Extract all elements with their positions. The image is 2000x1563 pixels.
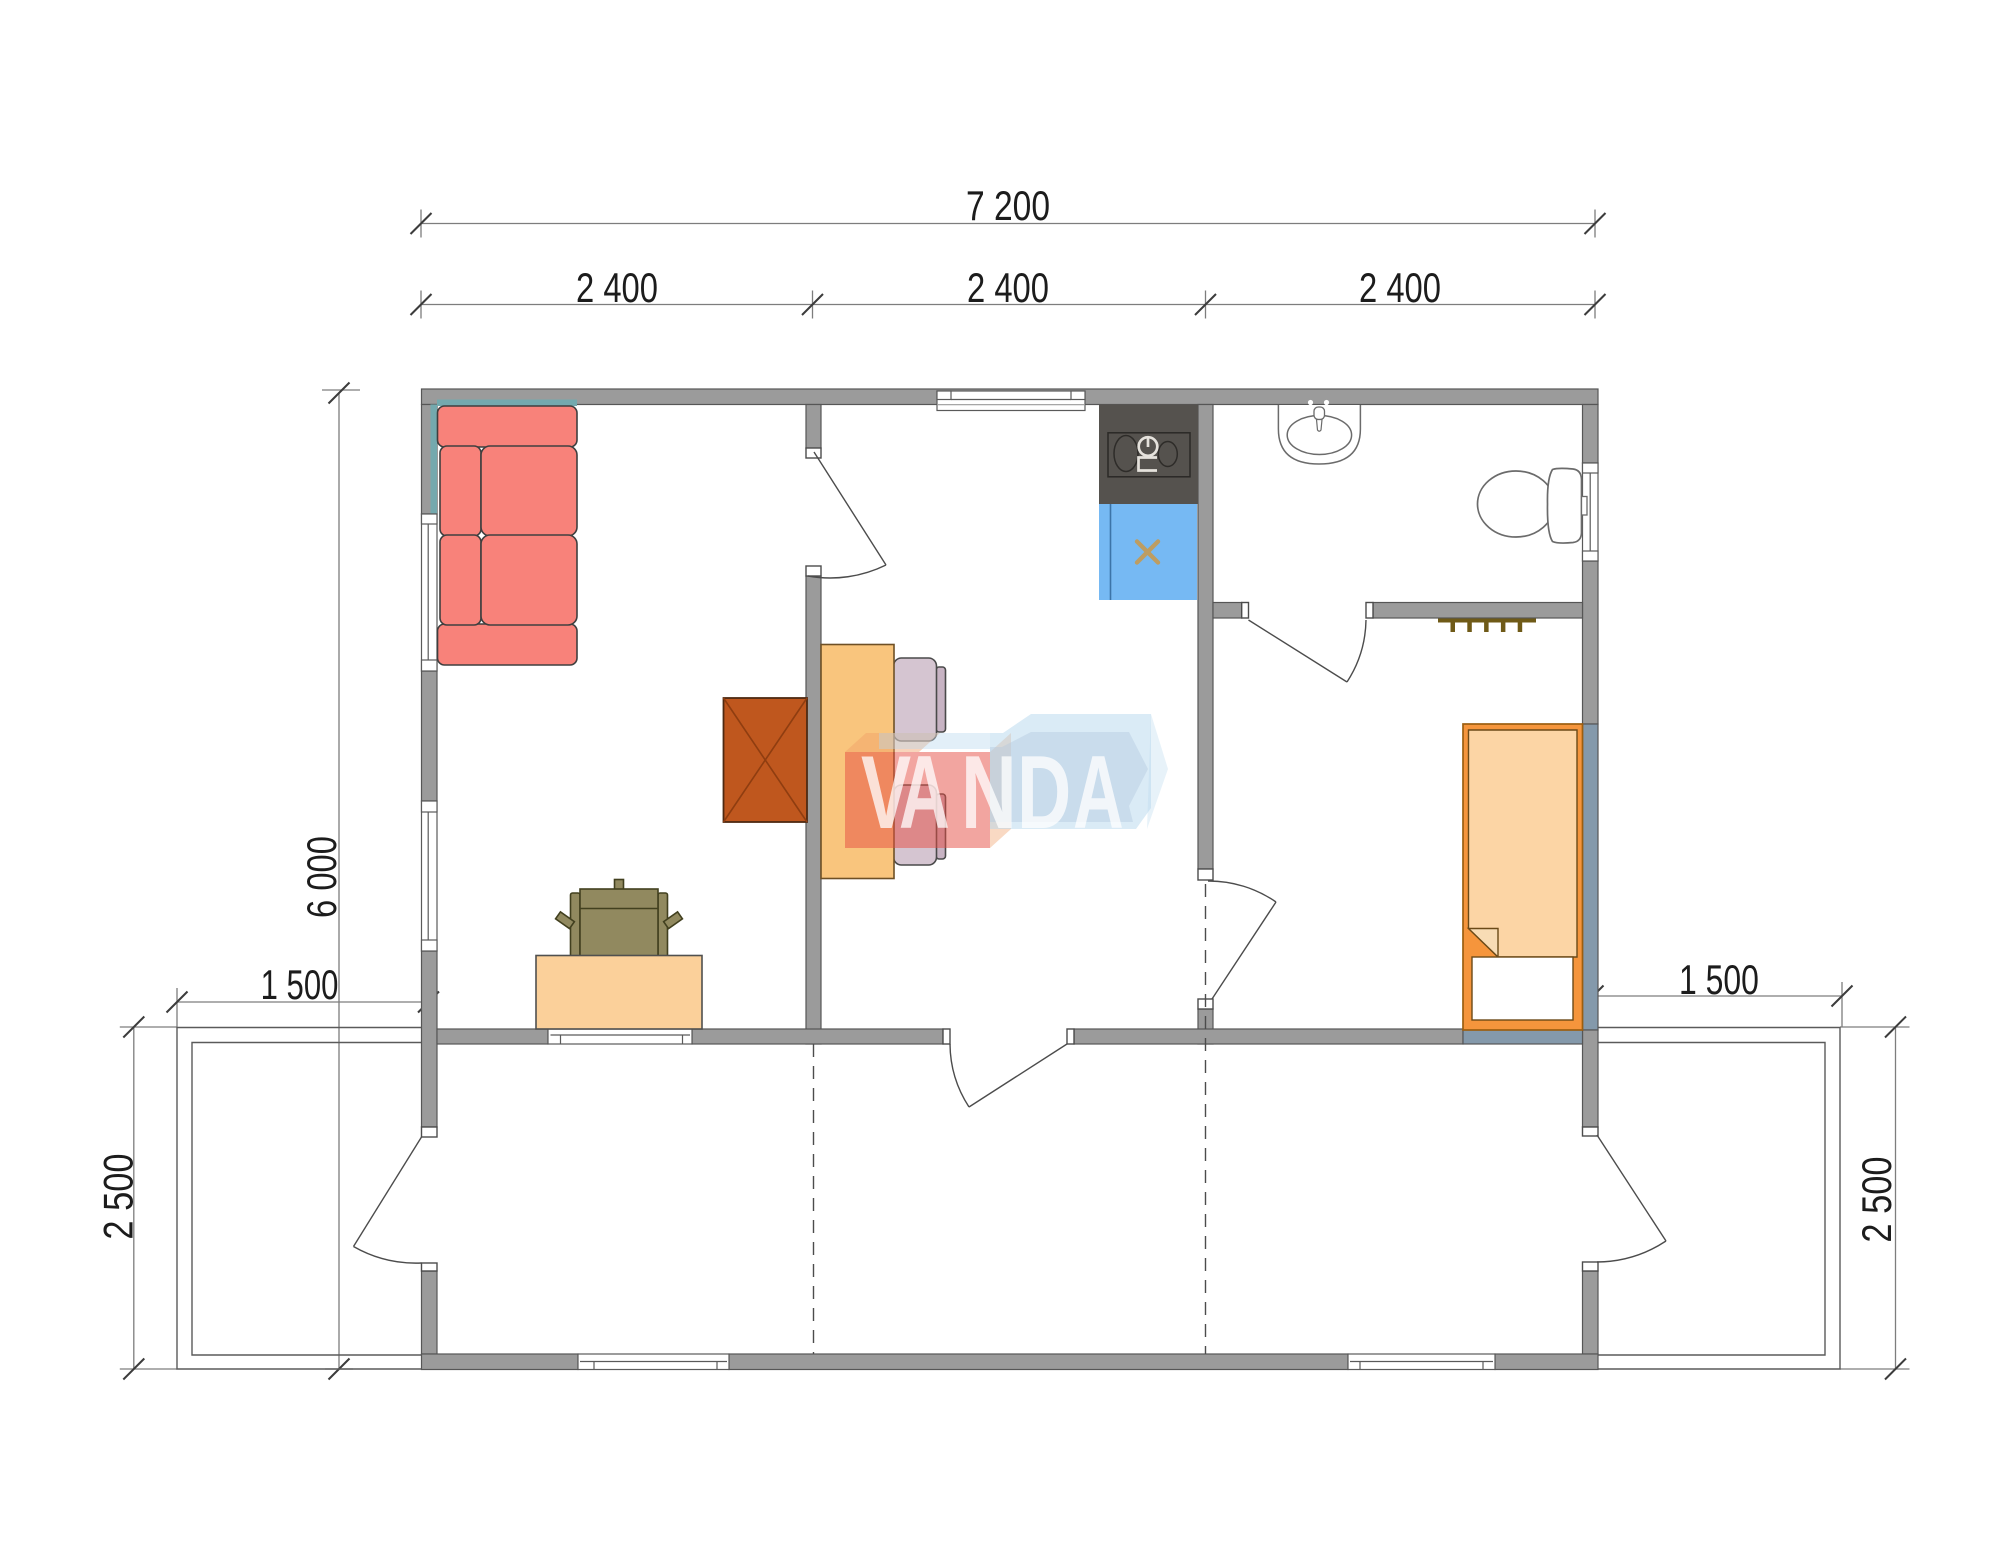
svg-text:2 400: 2 400	[967, 264, 1049, 311]
svg-text:2 400: 2 400	[576, 264, 658, 311]
svg-text:1 500: 1 500	[261, 961, 339, 1008]
svg-text:N: N	[961, 735, 1017, 851]
svg-text:2 500: 2 500	[1854, 1156, 1901, 1242]
svg-text:D: D	[1017, 735, 1071, 851]
svg-text:A: A	[899, 734, 950, 850]
svg-text:7 200: 7 200	[966, 184, 1050, 230]
svg-text:6 000: 6 000	[298, 836, 345, 918]
svg-text:2 500: 2 500	[95, 1153, 142, 1239]
svg-text:1 500: 1 500	[1679, 956, 1759, 1003]
svg-text:2 400: 2 400	[1359, 264, 1441, 311]
svg-text:A: A	[1073, 734, 1124, 850]
